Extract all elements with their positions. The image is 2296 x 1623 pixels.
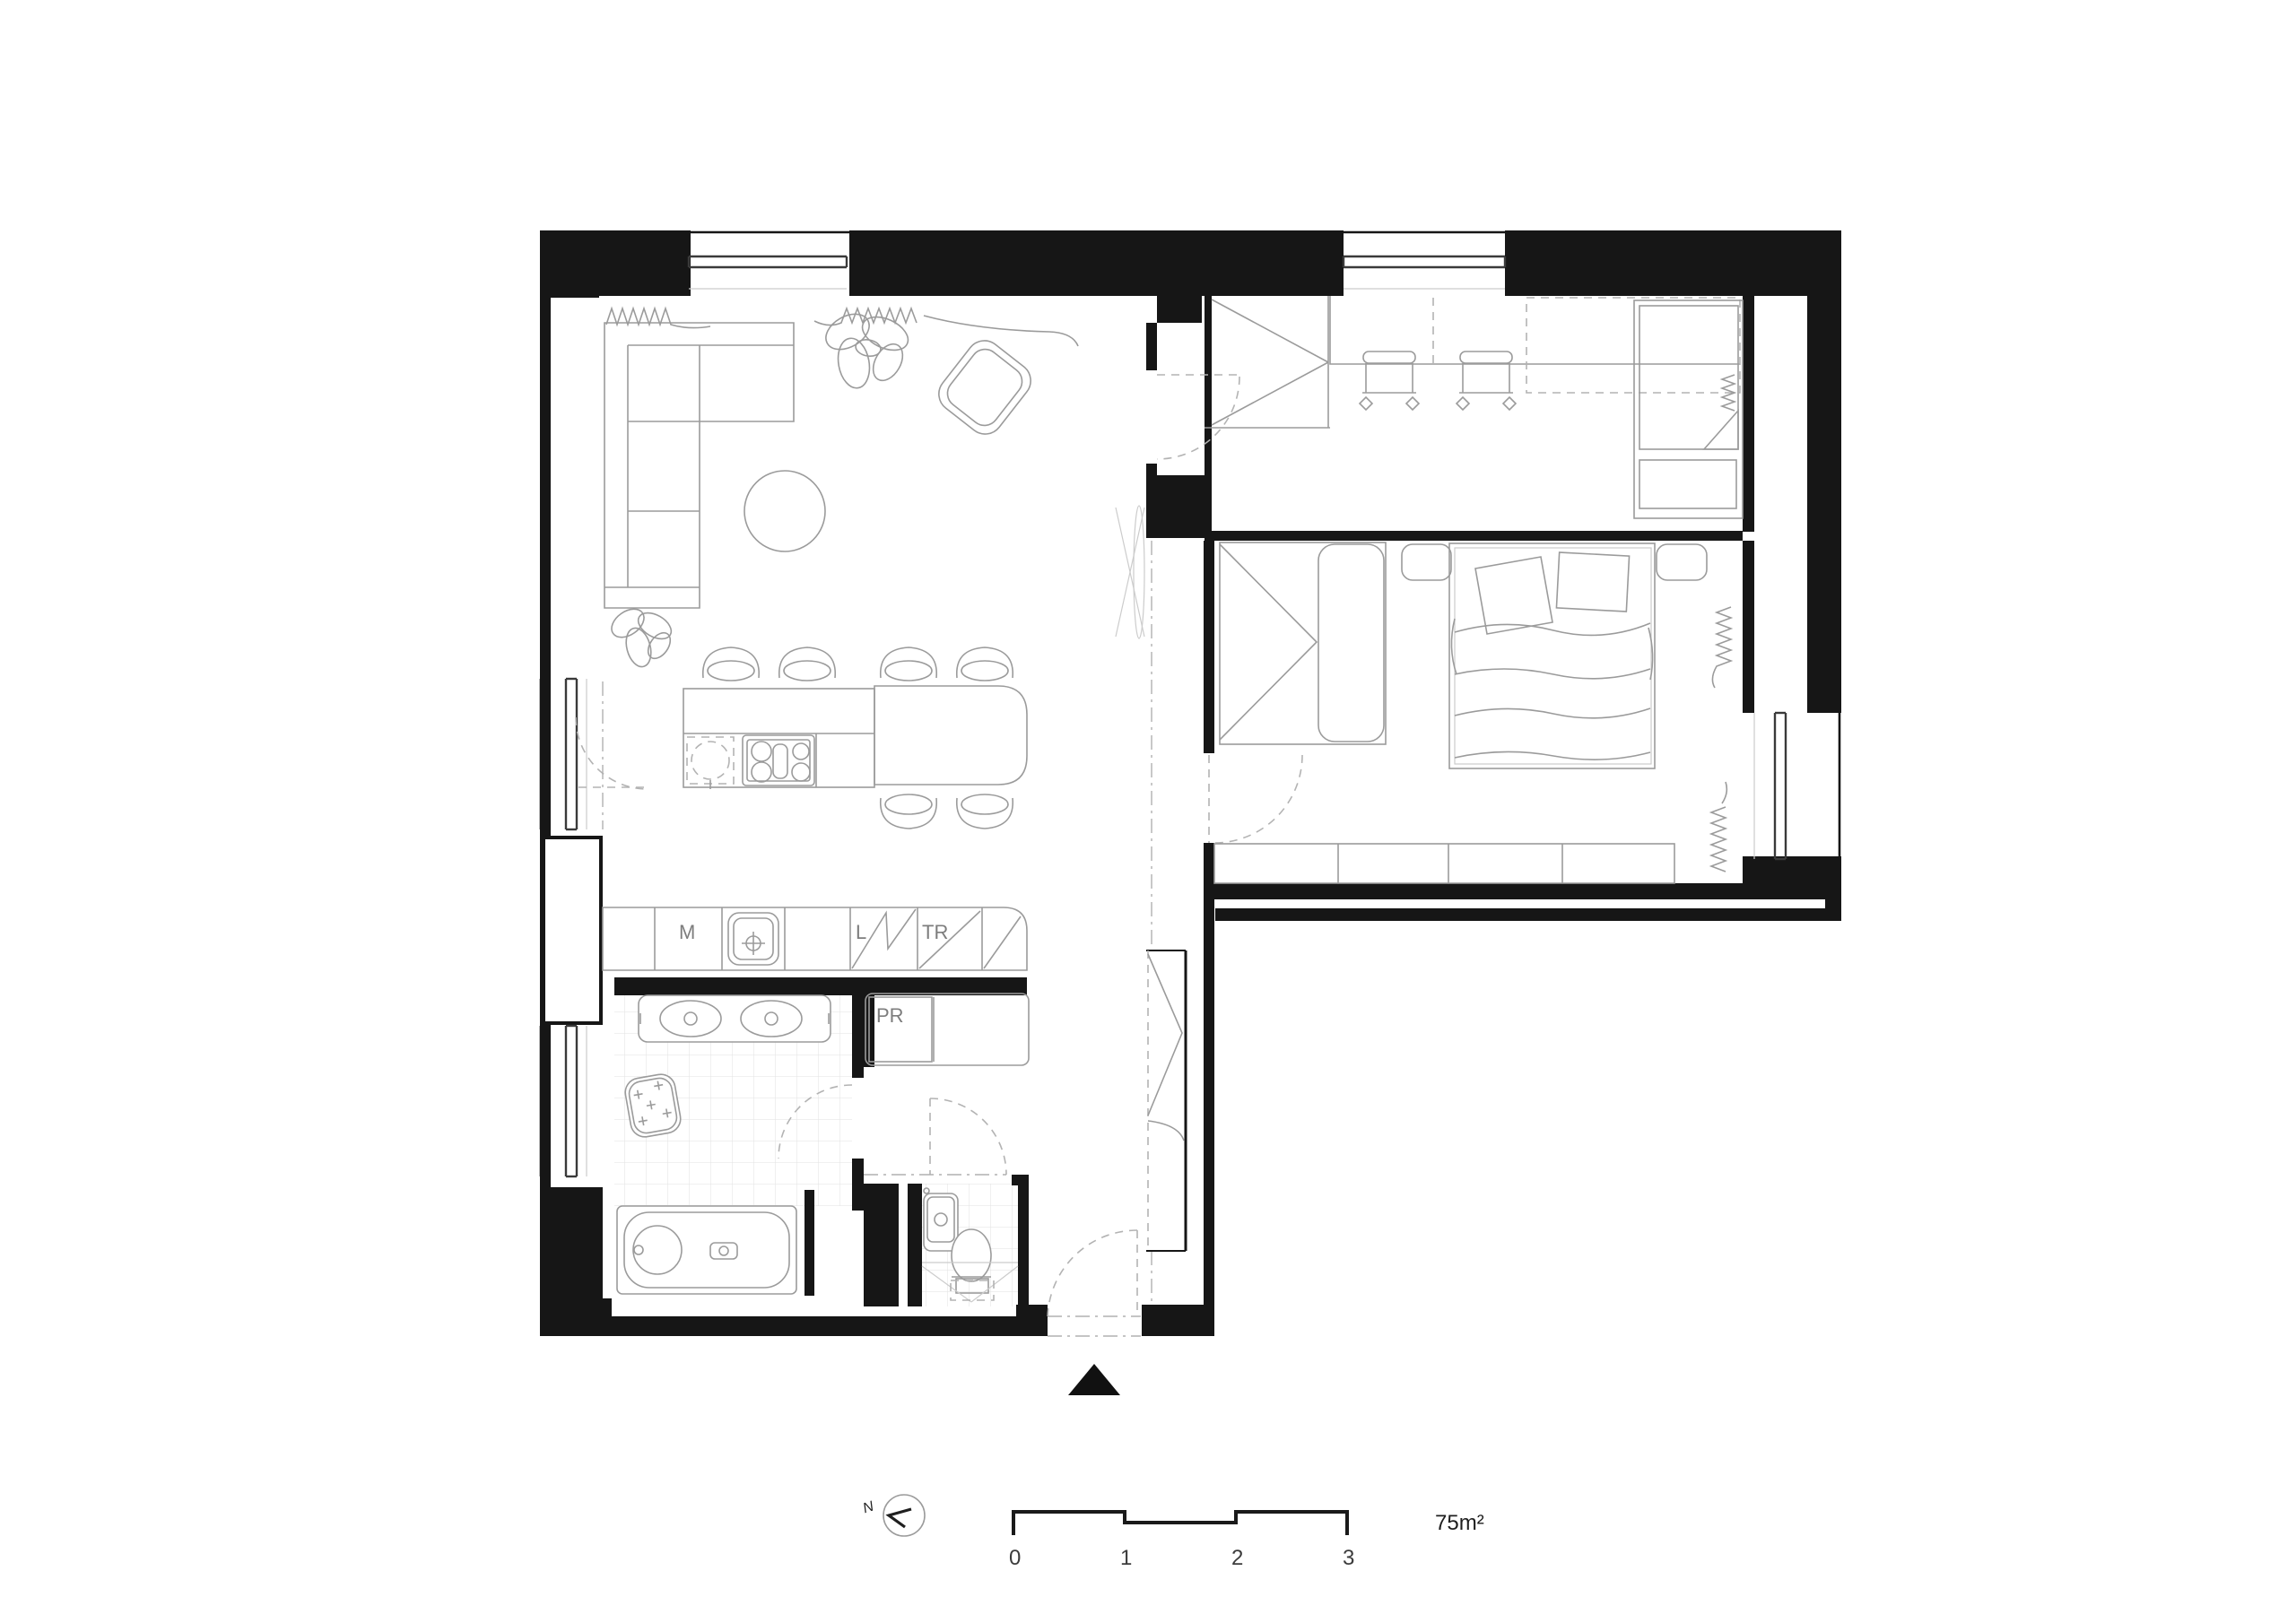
label-m: M xyxy=(679,921,695,943)
vanity xyxy=(639,995,831,1042)
window-living-north xyxy=(689,232,849,289)
stool xyxy=(881,647,936,681)
wall-north-right-block xyxy=(1505,230,1841,296)
bedroom2-door-arc xyxy=(1214,755,1302,843)
wall-wing-south-outer xyxy=(1215,908,1841,921)
armchair xyxy=(932,334,1038,441)
island-sink xyxy=(687,737,734,789)
bathtub xyxy=(617,1206,796,1294)
wall-west-pier xyxy=(544,838,601,1023)
wall-south-bath xyxy=(540,1316,1033,1336)
entrance-marker xyxy=(1068,1364,1120,1395)
wall-wc-right-step xyxy=(1012,1175,1029,1185)
sofa xyxy=(604,323,794,608)
floor-plan-drawing: M L TR xyxy=(0,0,2296,1623)
wall-bath-east-lower xyxy=(852,1159,864,1211)
nightstand xyxy=(1657,544,1707,580)
low-closet-row xyxy=(1214,844,1674,883)
floor-plan-page: M L TR xyxy=(0,0,2296,1623)
wall-bedroom1-east xyxy=(1743,296,1754,532)
wall-vestibule-step xyxy=(1157,296,1202,323)
desk-chair xyxy=(1457,352,1516,410)
bath-mat xyxy=(623,1072,683,1140)
nightstand xyxy=(1402,544,1451,580)
label-l: L xyxy=(856,921,866,943)
legend: N 0 1 2 3 75m² xyxy=(861,1495,1484,1570)
bedroom-2 xyxy=(1214,542,1731,883)
wall-wing-se-corner xyxy=(1825,883,1841,921)
curtain-marks xyxy=(606,308,1078,346)
scale-tick-0: 0 xyxy=(1009,1546,1021,1570)
area-label: 75m² xyxy=(1435,1511,1484,1535)
wall-wc-right xyxy=(1018,1175,1029,1306)
wall-west-top-corner xyxy=(540,230,599,298)
scale-bar: 0 1 2 3 xyxy=(1009,1512,1354,1570)
wall-corridor-pillar xyxy=(1146,475,1205,538)
hall-wardrobe xyxy=(1146,950,1186,1251)
dining-table xyxy=(874,686,1027,785)
wall-bedroom2-east xyxy=(1743,541,1754,713)
wall-bath-north xyxy=(614,977,1027,995)
wall-bedroom2-west-upper xyxy=(1204,541,1214,753)
desk-chair xyxy=(1360,352,1419,410)
plant-small xyxy=(606,603,675,670)
stool xyxy=(703,647,759,681)
bedroom1-door-arc xyxy=(1157,377,1239,459)
scale-tick-1: 1 xyxy=(1120,1546,1132,1570)
wall-bedroom1-west xyxy=(1205,296,1212,538)
kitchen: M L TR xyxy=(603,647,1027,970)
double-bed xyxy=(1449,543,1655,768)
utility-counter: M L TR xyxy=(603,907,1027,970)
counter-sink xyxy=(728,913,778,965)
scale-tick-3: 3 xyxy=(1343,1546,1354,1570)
scale-tick-2: 2 xyxy=(1231,1546,1243,1570)
glass-door-leaf xyxy=(1116,506,1144,638)
kitchen-island xyxy=(683,689,874,787)
wall-east-outer xyxy=(1807,296,1841,713)
entry-door-arc xyxy=(1048,1230,1137,1320)
north-label: N xyxy=(861,1498,876,1516)
wall-west-bottom xyxy=(542,1187,603,1298)
blanket xyxy=(1451,619,1652,759)
plant-large xyxy=(820,307,913,390)
pillow xyxy=(1475,557,1552,634)
bedroom1-wardrobe xyxy=(1205,296,1330,428)
curtain-marks xyxy=(1711,607,1731,872)
label-tr: TR xyxy=(922,921,948,943)
wall-bath-wc-pillar xyxy=(864,1184,899,1306)
bedroom1-bed xyxy=(1634,300,1743,518)
wc-door-arc xyxy=(930,1098,1006,1175)
wall-between-bedrooms xyxy=(1205,531,1743,541)
north-compass: N xyxy=(861,1495,925,1536)
wall-corridor-left-upper xyxy=(1146,323,1157,370)
compass-needle-icon xyxy=(889,1509,911,1527)
bedroom-1 xyxy=(1205,296,1743,518)
living-room xyxy=(604,307,1144,669)
dining-stools xyxy=(703,647,1013,829)
wall-tub-nook xyxy=(804,1190,814,1296)
wall-bedroom2-west-lower xyxy=(1204,843,1214,899)
coffee-table xyxy=(744,471,825,551)
wall-bath-east-upper xyxy=(852,995,864,1078)
bedroom2-wardrobe xyxy=(1220,542,1386,744)
window-bedroom2-east xyxy=(1754,713,1839,859)
pantry: PR xyxy=(865,994,1029,1065)
stool xyxy=(957,794,1013,829)
pillow xyxy=(1556,552,1629,612)
wall-north-mid-block xyxy=(849,230,1344,296)
wall-wc-left xyxy=(908,1184,922,1306)
desk xyxy=(1330,296,1740,393)
end-cabinet-mark xyxy=(984,916,1021,968)
wall-corridor-right xyxy=(1204,899,1214,1336)
stool xyxy=(957,647,1013,681)
stool xyxy=(779,647,835,681)
wc-sink xyxy=(924,1188,958,1251)
wall-entry-left-step xyxy=(1016,1305,1048,1336)
wall-wing-south-inner xyxy=(1205,883,1832,899)
stool xyxy=(881,794,936,829)
scale-bar-line xyxy=(1013,1512,1347,1535)
label-pr: PR xyxy=(876,1004,904,1027)
overhead-cabinet-dashed xyxy=(1526,298,1740,393)
cooktop xyxy=(743,735,814,785)
window-bedroom1-north xyxy=(1344,232,1505,289)
wall-entry-right-block xyxy=(1142,1305,1206,1336)
wall-corridor-left-stub xyxy=(1146,464,1157,475)
